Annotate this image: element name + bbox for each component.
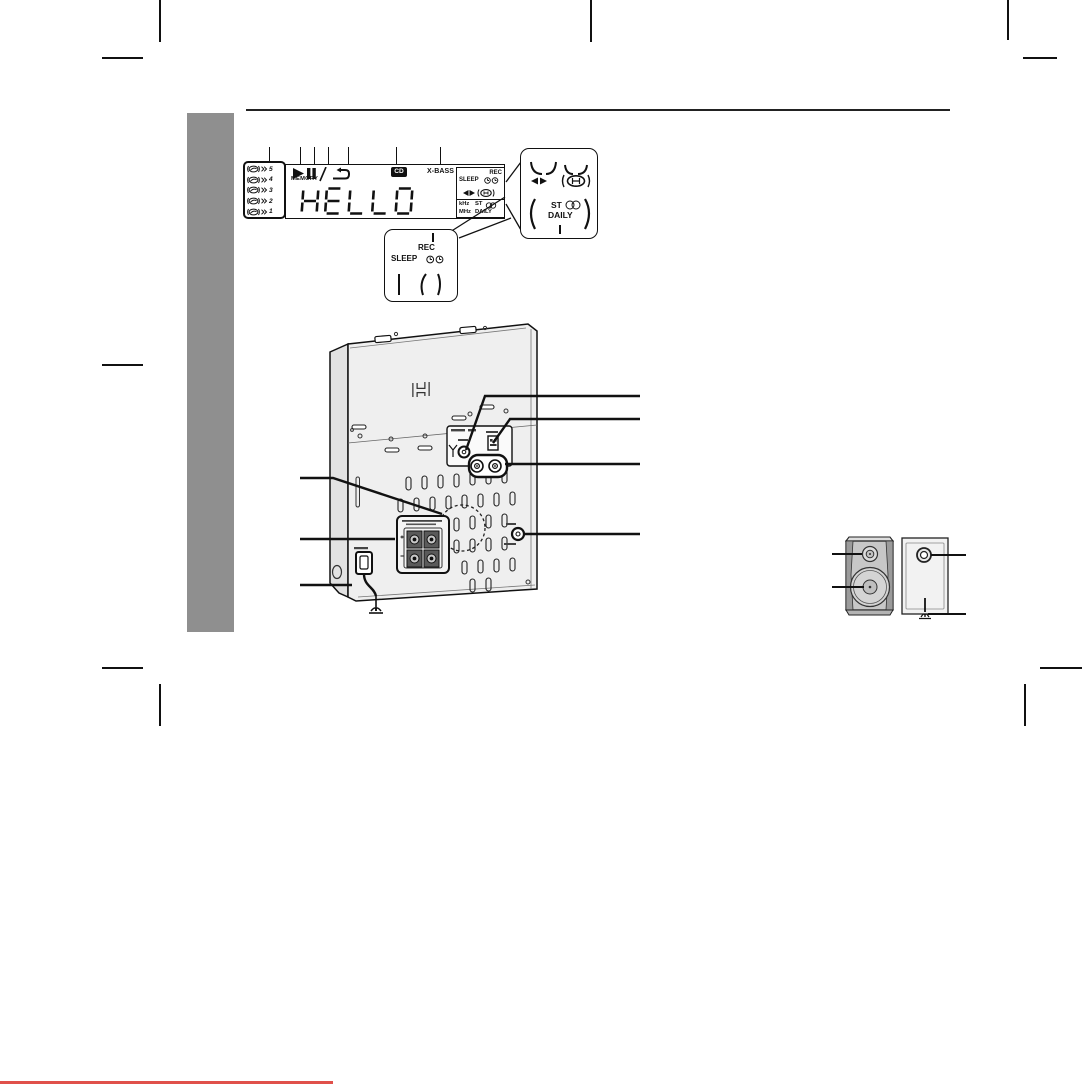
speaker-front-view	[846, 537, 893, 615]
st-indicator-large: ST	[551, 201, 562, 210]
mounting-slot	[460, 326, 476, 333]
fine-print-mark	[402, 520, 442, 522]
fine-print-mark	[506, 523, 516, 525]
segment-glyphs	[521, 149, 599, 240]
cabinet-side-face	[330, 344, 348, 597]
speakers-figure	[820, 530, 980, 630]
ac-input-socket	[356, 552, 372, 574]
disc-number: 1	[269, 208, 273, 215]
clock-icons	[426, 255, 445, 264]
crop-mark	[159, 684, 161, 726]
clock-icons	[484, 177, 499, 184]
disc-row: 4	[245, 175, 284, 186]
sleep-indicator-large: SLEEP	[391, 255, 417, 263]
disc-icon	[246, 176, 268, 184]
crop-mark	[1040, 667, 1082, 669]
rear-panel-figure	[290, 315, 650, 650]
divider-slash	[320, 167, 326, 181]
disc-number: 5	[269, 166, 273, 173]
rec-indicator: REC	[489, 170, 502, 176]
segment-tick	[432, 233, 434, 242]
disc-icon	[246, 197, 268, 205]
disc-number: 2	[269, 198, 273, 205]
segment-display	[300, 187, 419, 215]
mounting-slot	[375, 335, 391, 342]
disc-tray-indicator: 5 4 3 2	[243, 161, 286, 219]
segment-glyphs	[393, 271, 449, 299]
rear-jack	[512, 528, 524, 540]
disc-icon	[246, 186, 268, 194]
display-panel-figure: 5 4 3 2	[0, 0, 1082, 320]
memory-indicator: MEMORY	[291, 177, 318, 183]
magnified-indicator-box: ST DAILY	[520, 148, 598, 239]
crop-mark	[102, 364, 143, 366]
manual-page: 5 4 3 2	[0, 0, 1082, 1084]
timer-callout-box: REC SLEEP	[384, 229, 458, 302]
disc-row: 3	[245, 185, 284, 196]
crop-mark	[102, 667, 143, 669]
fine-print-mark	[354, 547, 368, 549]
disc-number: 3	[269, 187, 273, 194]
sleep-indicator: SLEEP	[459, 177, 479, 183]
tape-direction-icon	[531, 178, 538, 185]
disc-icon	[246, 208, 268, 216]
fine-print-mark	[504, 543, 516, 545]
disc-number: 4	[269, 176, 273, 183]
disc-row: 2	[245, 196, 284, 207]
cd-badge: CD	[391, 167, 407, 177]
disc-row: 5	[245, 164, 284, 175]
fine-print-mark	[486, 431, 498, 433]
disc-row: 1	[245, 206, 284, 217]
fine-print-mark	[406, 524, 436, 526]
crop-mark	[1024, 684, 1026, 726]
repeat-icon-arrowhead	[337, 168, 342, 173]
fine-print-mark	[451, 429, 465, 431]
xbass-indicator: X-BASS	[427, 168, 454, 175]
daily-indicator-large: DAILY	[548, 211, 573, 220]
rec-indicator-large: REC	[418, 244, 435, 252]
disc-icon	[246, 165, 268, 173]
speaker-rear-view	[902, 538, 948, 619]
fine-print-mark	[458, 439, 468, 441]
